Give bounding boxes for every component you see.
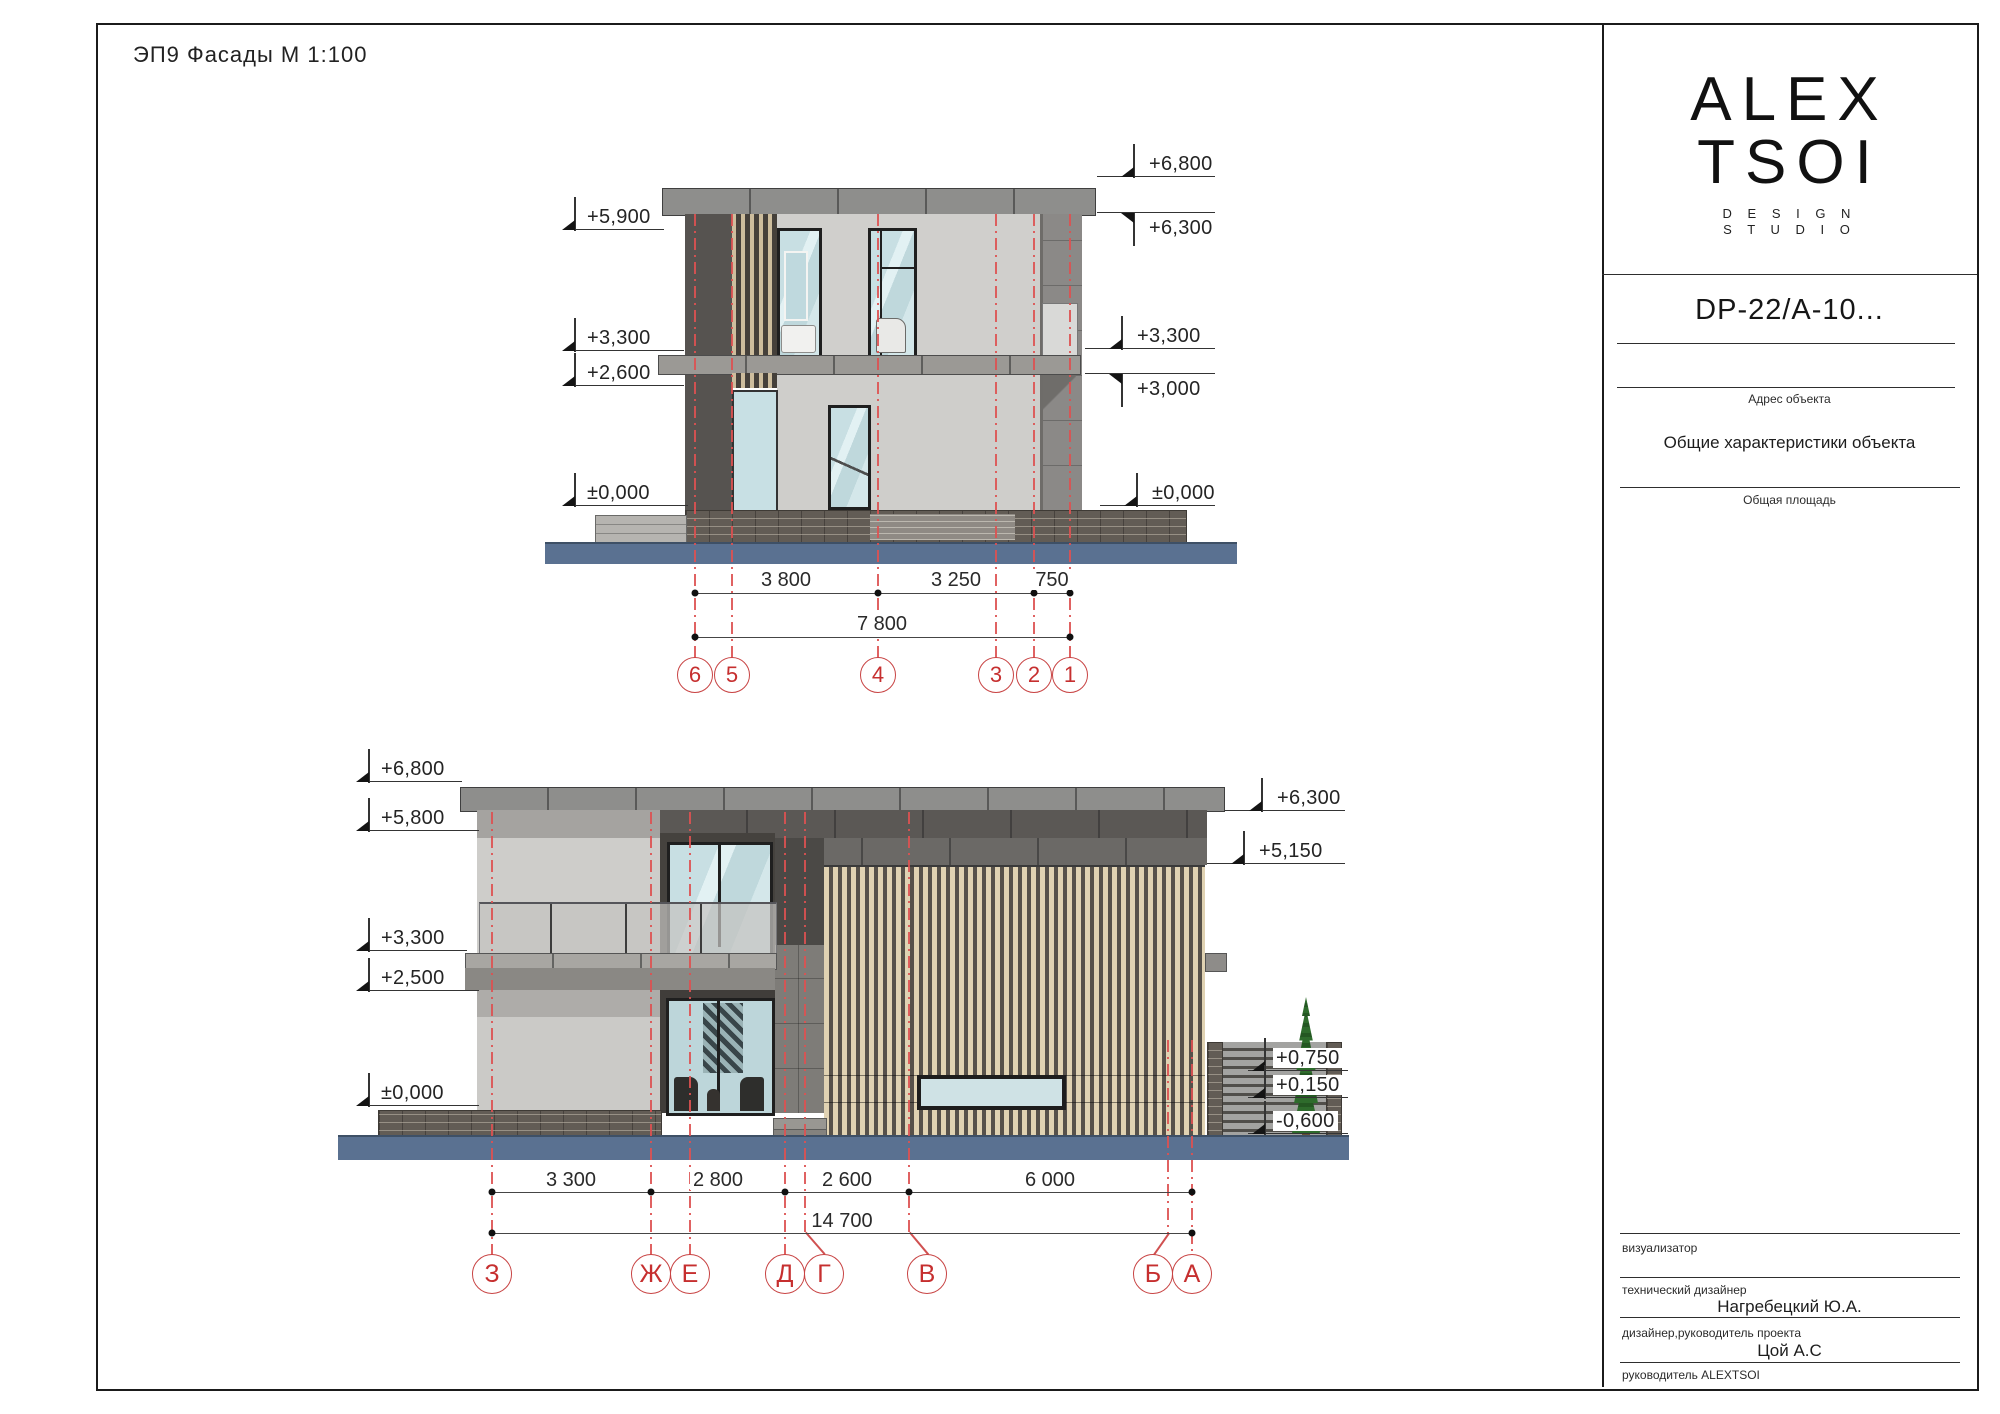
floor-band: [658, 355, 1081, 375]
inner-window: [784, 251, 808, 321]
tech-designer-label: технический дизайнер: [1622, 1283, 1747, 1297]
fence-pillar: [1207, 1042, 1223, 1140]
logo-line-1: ALEX: [1602, 68, 1977, 131]
axis-bubble-d: Д: [765, 1254, 805, 1294]
dim-label: 2 600: [819, 1170, 875, 1190]
characteristics-label: Общие характеристики объекта: [1602, 433, 1977, 453]
dim-label: 750: [1032, 570, 1071, 590]
logo-subtitle: D E S I G N S T U D I O: [1602, 206, 1977, 239]
bedroom-window: [777, 228, 822, 358]
visualizer-label: визуализатор: [1622, 1241, 1697, 1255]
elevation-marker: +6,300: [1225, 810, 1345, 811]
axis-line-5: [731, 214, 733, 658]
elevation-marker: +2,600: [572, 385, 684, 386]
lead-designer-label: дизайнер,руководитель проекта: [1622, 1326, 1801, 1340]
dim-label: 3 250: [928, 570, 984, 590]
axis-bubble-z: З: [472, 1254, 512, 1294]
axis-bubble-a: А: [1172, 1254, 1212, 1294]
chair-silhouette: [740, 1077, 764, 1111]
axis-bubble-4: 4: [860, 657, 896, 693]
elevation-marker: +3,000: [1085, 373, 1215, 374]
wall-shadow-strip: [477, 990, 660, 1017]
armchair-silhouette: [876, 318, 906, 353]
shadow-wedge: [1043, 373, 1076, 415]
slab-soffit: [465, 968, 775, 990]
project-code: DP-22/A-10...: [1602, 294, 1977, 327]
slit-window: [917, 1075, 1066, 1110]
drawing-sheet: ЭП9 Фасады М 1:100: [0, 0, 2000, 1414]
elevation-marker: +2,500: [366, 990, 479, 991]
table-silhouette: [707, 1089, 720, 1111]
axis-bubble-zh: Ж: [631, 1254, 671, 1294]
dim-label: 3 800: [758, 570, 814, 590]
logo-line-2: TSOI: [1602, 131, 1977, 194]
window-transom: [881, 267, 914, 269]
elevation-marker: +5,900: [572, 229, 664, 230]
elevation-marker: +0,750: [1248, 1070, 1348, 1071]
dimension-line-total: [492, 1233, 1192, 1234]
elevation-marker: +3,300: [572, 350, 684, 351]
roof-band: [662, 188, 1096, 216]
bed-silhouette: [781, 325, 816, 353]
axis-line-b: [1167, 1040, 1169, 1233]
stair-line: [831, 426, 868, 507]
entrance-door: [828, 405, 871, 510]
chair-silhouette: [674, 1077, 698, 1111]
axis-line-v: [908, 812, 910, 1233]
roof-band: [460, 787, 1225, 812]
area-label: Общая площадь: [1602, 493, 1977, 507]
upper-dark-band: [775, 838, 1207, 865]
dimension-line: [695, 593, 1070, 594]
elevation-marker: ±0,000: [572, 505, 688, 506]
dim-label: 6 000: [1022, 1170, 1078, 1190]
elevation-marker: +6,300: [1097, 212, 1215, 213]
panel-column: [775, 945, 824, 1113]
tech-designer-name: Нагребецкий Ю.А.: [1602, 1297, 1977, 1317]
axis-bubble-g: Г: [804, 1254, 844, 1294]
elevation-marker: +6,800: [366, 781, 462, 782]
elevation-marker: ±0,000: [366, 1105, 479, 1106]
parapet-strip-left: [477, 810, 660, 838]
axis-bubble-2: 2: [1016, 657, 1052, 693]
dim-label-total: 7 800: [854, 614, 910, 634]
elevation-marker: +5,150: [1207, 863, 1345, 864]
terrace-doors: [666, 998, 775, 1116]
axis-bubble-5: 5: [714, 657, 750, 693]
head-label: руководитель ALEXTSOI: [1622, 1368, 1760, 1382]
beam-end: [1205, 953, 1227, 972]
elevation-marker: -0,600: [1248, 1133, 1348, 1134]
axis-bubble-3: 3: [978, 657, 1014, 693]
wall-lower: [777, 373, 1040, 510]
elevation-marker: +6,800: [1097, 176, 1215, 177]
axis-bubble-6: 6: [677, 657, 713, 693]
elevation-marker: +3,300: [1085, 348, 1215, 349]
axis-bubble-1: 1: [1052, 657, 1088, 693]
dim-label: 2 800: [690, 1170, 746, 1190]
ground-strip: [338, 1135, 1349, 1160]
elevation-marker: +3,300: [366, 950, 467, 951]
address-label: Адрес объекта: [1602, 392, 1977, 406]
elevation-marker: +0,150: [1248, 1097, 1348, 1098]
balcony-glass-railing: [479, 902, 777, 956]
panel-column-top: [775, 838, 824, 945]
dim-label-total: 14 700: [808, 1211, 875, 1231]
axis-bubble-b: Б: [1133, 1254, 1173, 1294]
axis-bubble-e: Е: [670, 1254, 710, 1294]
side-window-panel: [1042, 303, 1078, 357]
page-title: ЭП9 Фасады М 1:100: [133, 42, 367, 68]
retaining-wall: [595, 515, 687, 544]
elevation-marker: +5,800: [366, 830, 479, 831]
tall-window: [732, 390, 778, 514]
wall-lower-left: [477, 1017, 660, 1110]
logo-text: ALEX TSOI: [1602, 68, 1977, 194]
axis-line-3: [995, 214, 997, 658]
window-2: [868, 228, 917, 358]
herringbone-wall: [703, 1003, 743, 1073]
dimension-line: [492, 1192, 1192, 1193]
lead-designer-name: Цой А.С: [1602, 1341, 1977, 1361]
elevation-marker: ±0,000: [1100, 505, 1215, 506]
logo-section: ALEX TSOI D E S I G N S T U D I O: [1602, 23, 1977, 274]
axis-bubble-v: В: [907, 1254, 947, 1294]
wood-slat-panel-lower: [732, 373, 777, 388]
dimension-line-total: [695, 637, 1070, 638]
axis-line-g: [804, 812, 806, 1233]
axis-line-a: [1191, 1040, 1193, 1255]
dim-label: 3 300: [543, 1170, 599, 1190]
ground-strip: [545, 542, 1237, 564]
deck-planks: [870, 514, 1015, 540]
